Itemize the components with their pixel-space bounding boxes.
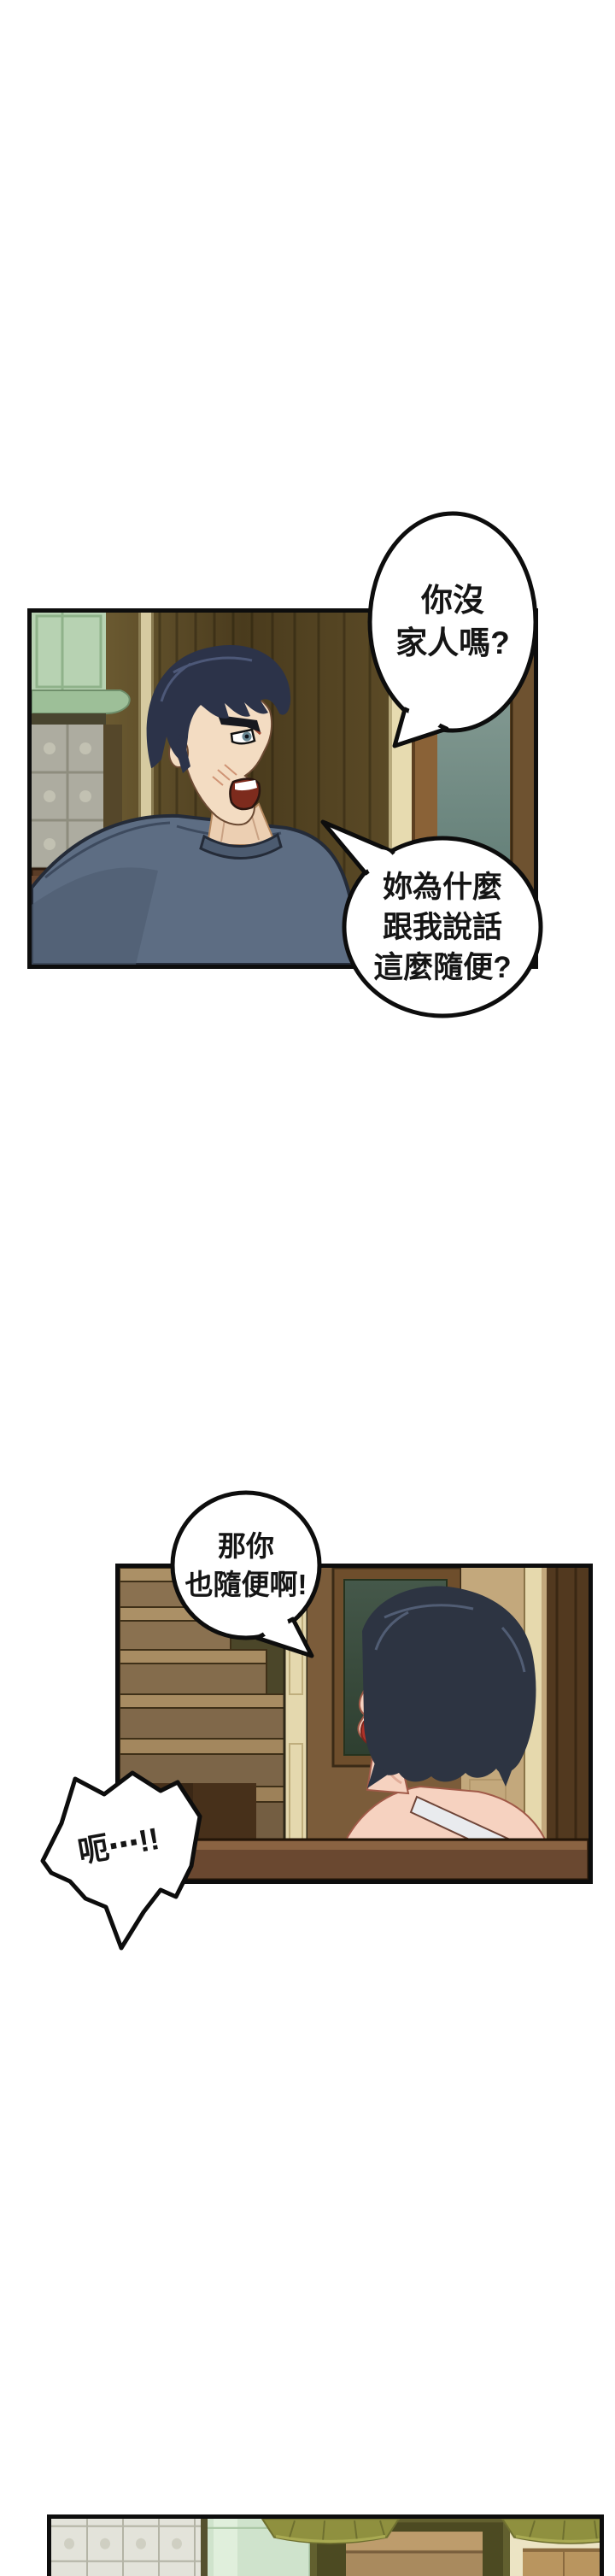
dialogue-line: 呃⋯!! bbox=[74, 1814, 163, 1872]
speech-bubble-3: 那你 也隨便啊! bbox=[167, 1487, 329, 1666]
wall-seam bbox=[201, 2519, 208, 2576]
dialogue-line: 這麼隨便? bbox=[373, 948, 511, 988]
room-scene bbox=[51, 2519, 600, 2576]
speech-bubble-3-text: 那你 也隨便啊! bbox=[173, 1493, 319, 1638]
comic-page: { "page": { "type": "webtoon-comic-page"… bbox=[0, 0, 615, 2570]
panel-room-cropped bbox=[47, 2514, 604, 2576]
dialogue-line: 跟我說話 bbox=[383, 907, 502, 948]
dialogue-line: 那你 bbox=[218, 1527, 274, 1565]
lamp-shade-left bbox=[262, 2519, 399, 2544]
man-mouth bbox=[230, 778, 260, 809]
dialogue-line: 也隨便啊! bbox=[185, 1565, 307, 1604]
speech-bubble-1-text: 你沒 家人嗎? bbox=[370, 513, 536, 731]
dialogue-line: 家人嗎? bbox=[395, 622, 510, 665]
glass-block-wall bbox=[51, 2519, 201, 2576]
burst-bubble: 呃⋯!! bbox=[32, 1769, 216, 1958]
dialogue-line: 你沒 bbox=[421, 579, 484, 622]
speech-bubble-2-text: 妳為什麼 跟我說話 這麼隨便? bbox=[344, 830, 541, 1024]
woman-character bbox=[335, 1586, 552, 1880]
wood-pillar bbox=[547, 1568, 589, 1880]
speech-bubble-2: 妳為什麼 跟我說話 這麼隨便? bbox=[316, 816, 551, 1025]
dialogue-line: 妳為什麼 bbox=[383, 867, 502, 907]
speech-bubble-1: 你沒 家人嗎? bbox=[350, 500, 555, 765]
right-cabinet bbox=[523, 2549, 600, 2576]
